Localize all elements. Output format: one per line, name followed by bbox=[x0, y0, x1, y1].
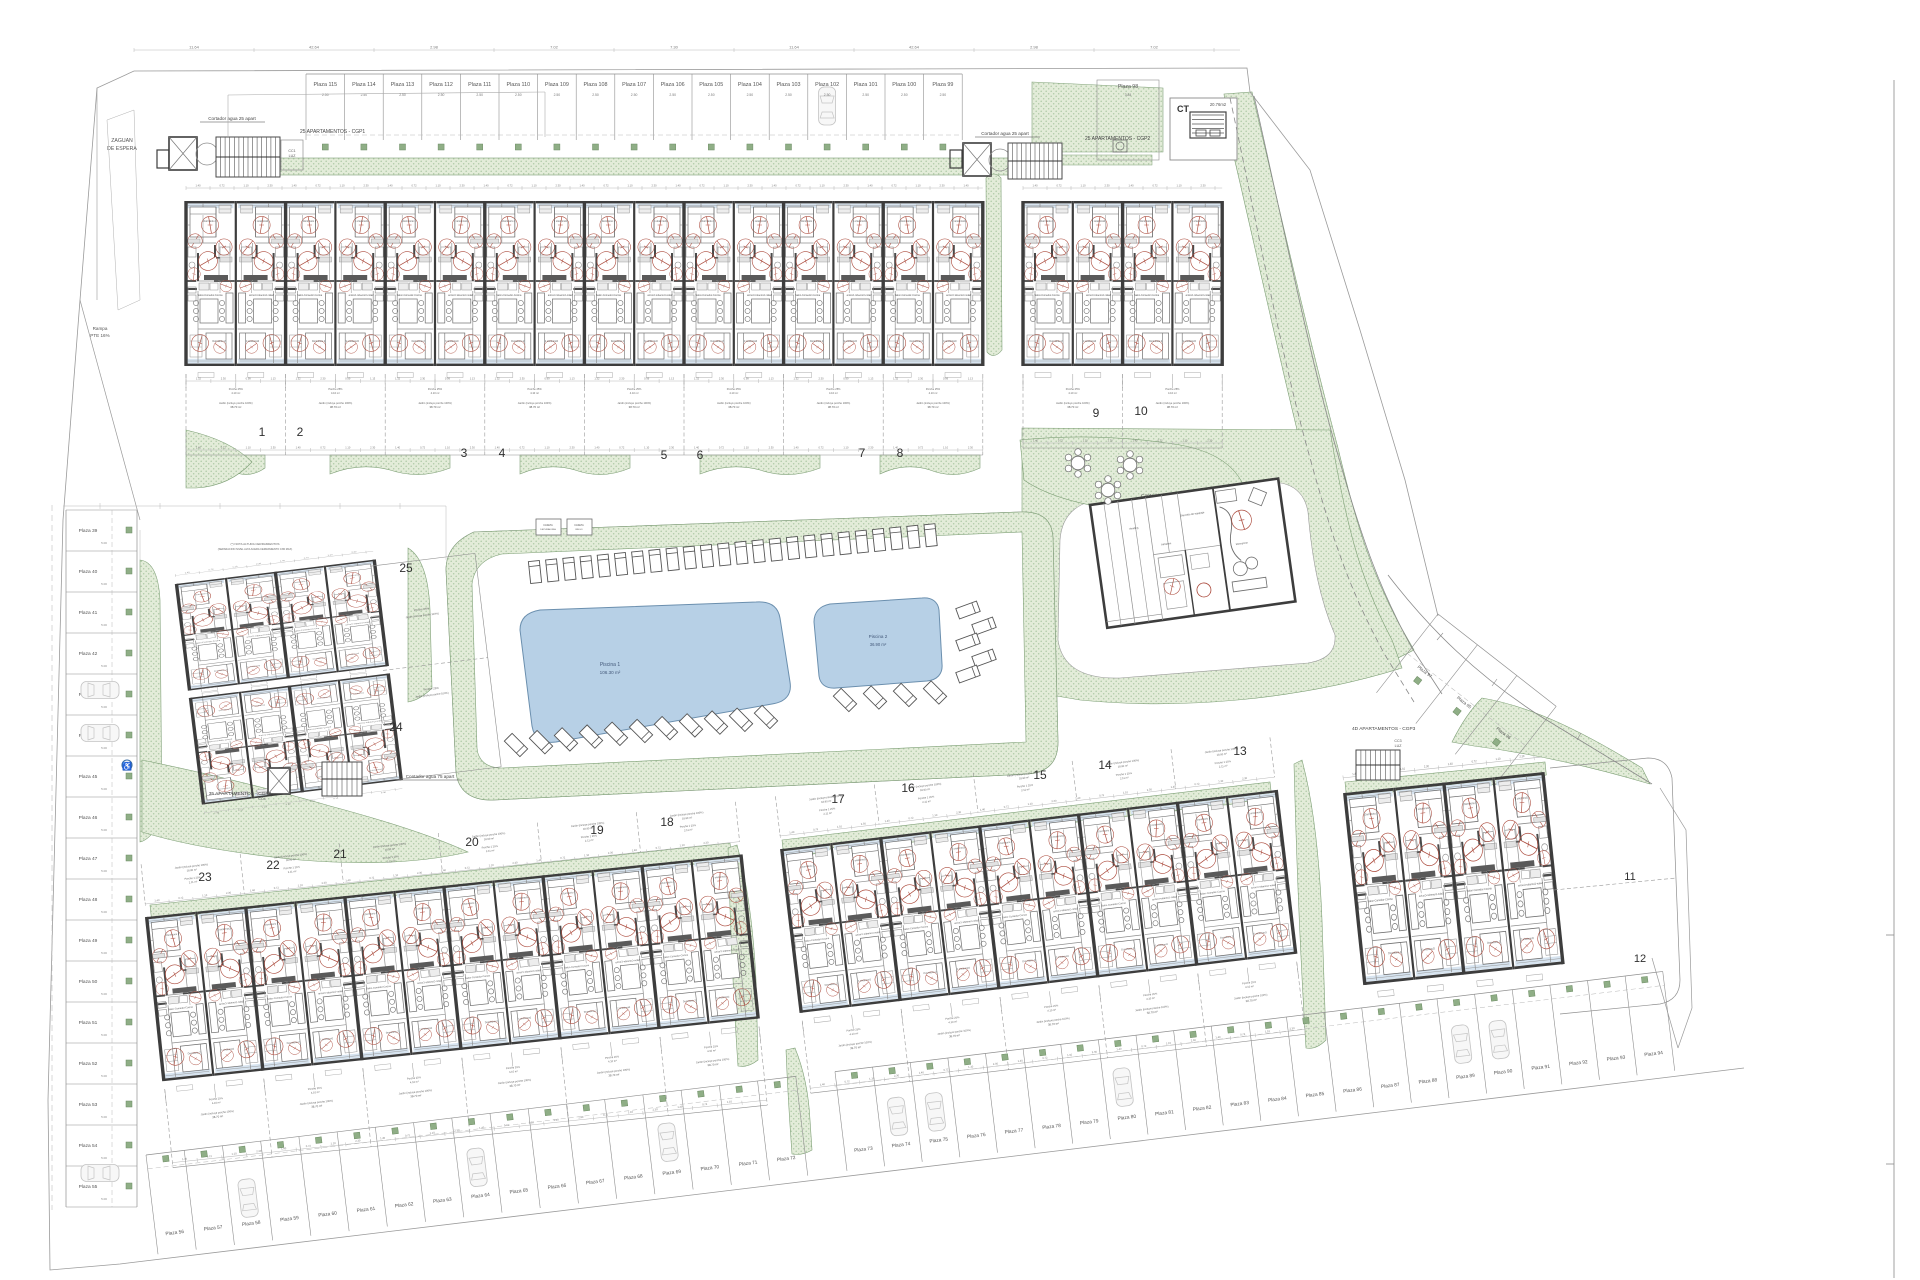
svg-text:1.40: 1.40 bbox=[1132, 439, 1138, 443]
svg-text:2.30: 2.30 bbox=[1207, 439, 1213, 443]
svg-text:0.72: 0.72 bbox=[274, 885, 280, 890]
svg-text:24: 24 bbox=[389, 720, 403, 734]
svg-text:1.40: 1.40 bbox=[387, 184, 393, 188]
svg-text:4.10 m²: 4.10 m² bbox=[231, 391, 240, 395]
svg-text:1.13: 1.13 bbox=[470, 377, 476, 381]
svg-text:2.50: 2.50 bbox=[669, 93, 676, 97]
svg-text:Porche 25%: Porche 25% bbox=[627, 387, 642, 391]
svg-text:1.40: 1.40 bbox=[867, 184, 873, 188]
svg-text:2.30: 2.30 bbox=[569, 446, 575, 450]
svg-text:Plaza 45: Plaza 45 bbox=[79, 774, 98, 780]
svg-text:Porche 25%: Porche 25% bbox=[229, 387, 244, 391]
svg-text:0.72: 0.72 bbox=[507, 184, 513, 188]
svg-text:0.72: 0.72 bbox=[306, 1144, 312, 1149]
svg-text:0.72: 0.72 bbox=[1152, 184, 1158, 188]
svg-text:1.40: 1.40 bbox=[578, 1115, 584, 1120]
svg-text:4.10 m²: 4.10 m² bbox=[1168, 391, 1177, 395]
svg-text:1.10: 1.10 bbox=[679, 843, 685, 848]
svg-text:1.32: 1.32 bbox=[594, 377, 600, 381]
svg-text:2.50: 2.50 bbox=[592, 93, 599, 97]
svg-text:Plaza 113: Plaza 113 bbox=[391, 82, 415, 88]
svg-text:2.30: 2.30 bbox=[1200, 184, 1206, 188]
svg-text:Plaza 41: Plaza 41 bbox=[79, 610, 98, 616]
svg-text:2.50: 2.50 bbox=[515, 93, 522, 97]
svg-text:1.10: 1.10 bbox=[544, 446, 550, 450]
svg-text:2.30: 2.30 bbox=[256, 1149, 262, 1154]
svg-text:1.13: 1.13 bbox=[968, 377, 974, 381]
svg-text:CC1: CC1 bbox=[288, 149, 295, 153]
svg-text:38.70 m²: 38.70 m² bbox=[429, 405, 440, 409]
svg-text:2.50: 2.50 bbox=[438, 93, 445, 97]
svg-text:1.40: 1.40 bbox=[483, 184, 489, 188]
svg-text:0.72: 0.72 bbox=[699, 184, 705, 188]
svg-text:Porche 25%: Porche 25% bbox=[926, 387, 941, 391]
svg-text:1.10: 1.10 bbox=[819, 184, 825, 188]
svg-text:42.64: 42.64 bbox=[909, 45, 920, 50]
svg-text:25: 25 bbox=[399, 561, 413, 575]
svg-text:1.10: 1.10 bbox=[943, 446, 949, 450]
svg-text:1.13: 1.13 bbox=[370, 377, 376, 381]
svg-text:2.30: 2.30 bbox=[520, 377, 526, 381]
svg-text:1.10: 1.10 bbox=[644, 446, 650, 450]
svg-text:0.72: 0.72 bbox=[1157, 439, 1163, 443]
svg-text:CASETA: CASETA bbox=[543, 524, 553, 527]
svg-text:1.40: 1.40 bbox=[1033, 439, 1039, 443]
svg-text:CASETA: CASETA bbox=[574, 524, 584, 527]
svg-text:3: 3 bbox=[461, 446, 468, 460]
svg-text:Plaza 53: Plaza 53 bbox=[79, 1102, 98, 1108]
svg-text:2.30: 2.30 bbox=[652, 1107, 658, 1112]
svg-text:DEPURADORA: DEPURADORA bbox=[540, 528, 556, 531]
svg-text:Plaza 110: Plaza 110 bbox=[507, 82, 531, 88]
svg-text:1.10: 1.10 bbox=[727, 1099, 733, 1104]
svg-text:38.70 m²: 38.70 m² bbox=[1167, 405, 1178, 409]
svg-text:4.10 m²: 4.10 m² bbox=[1068, 391, 1077, 395]
svg-text:0.72: 0.72 bbox=[411, 184, 417, 188]
svg-text:Porche 25%: Porche 25% bbox=[528, 387, 543, 391]
svg-text:7: 7 bbox=[859, 446, 866, 460]
svg-text:LUZ: LUZ bbox=[289, 154, 297, 158]
svg-text:Piscina 2: Piscina 2 bbox=[869, 634, 888, 639]
svg-text:1.40: 1.40 bbox=[1032, 184, 1038, 188]
svg-text:0.72: 0.72 bbox=[918, 446, 924, 450]
svg-text:10: 10 bbox=[1134, 404, 1148, 418]
svg-text:5.00: 5.00 bbox=[101, 623, 107, 627]
svg-text:7.30: 7.30 bbox=[670, 45, 679, 50]
svg-text:5.00: 5.00 bbox=[101, 1115, 107, 1119]
svg-text:2.30: 2.30 bbox=[868, 446, 874, 450]
svg-text:1.40: 1.40 bbox=[677, 1104, 683, 1109]
svg-text:CC4: CC4 bbox=[258, 797, 265, 801]
svg-text:Plaza 54: Plaza 54 bbox=[79, 1143, 98, 1149]
svg-text:1.10: 1.10 bbox=[297, 883, 303, 888]
svg-text:Plaza 50: Plaza 50 bbox=[79, 979, 98, 985]
svg-text:0.72: 0.72 bbox=[1058, 439, 1064, 443]
svg-text:2.30: 2.30 bbox=[843, 184, 849, 188]
svg-text:11: 11 bbox=[1624, 871, 1635, 883]
svg-text:4.10 m²: 4.10 m² bbox=[829, 391, 838, 395]
svg-text:2.30: 2.30 bbox=[608, 850, 614, 855]
svg-text:1.13: 1.13 bbox=[669, 377, 675, 381]
svg-text:1.10: 1.10 bbox=[330, 1141, 336, 1146]
svg-text:11.64: 11.64 bbox=[189, 45, 199, 50]
svg-text:♿: ♿ bbox=[122, 761, 132, 771]
svg-text:1.10: 1.10 bbox=[488, 863, 494, 868]
svg-text:2.50: 2.50 bbox=[901, 93, 908, 97]
svg-text:1.40: 1.40 bbox=[380, 1136, 386, 1141]
svg-text:1.32: 1.32 bbox=[793, 377, 799, 381]
svg-text:CC3: CC3 bbox=[1394, 739, 1401, 743]
svg-text:1.10: 1.10 bbox=[531, 184, 537, 188]
svg-text:Plaza 100: Plaza 100 bbox=[892, 82, 916, 88]
svg-text:Cortador agua 25 apart: Cortador agua 25 apart bbox=[208, 116, 256, 121]
svg-text:1.13: 1.13 bbox=[868, 377, 874, 381]
svg-text:1.10: 1.10 bbox=[627, 184, 633, 188]
svg-text:Plaza 105: Plaza 105 bbox=[699, 82, 723, 88]
svg-text:Plaza 42: Plaza 42 bbox=[79, 651, 98, 657]
svg-text:1.10: 1.10 bbox=[345, 446, 351, 450]
svg-text:5.00: 5.00 bbox=[101, 1074, 107, 1078]
svg-text:Plaza 49: Plaza 49 bbox=[79, 938, 98, 944]
svg-text:Plaza 52: Plaza 52 bbox=[79, 1061, 98, 1067]
svg-text:1.10: 1.10 bbox=[723, 184, 729, 188]
svg-text:20.76m2: 20.76m2 bbox=[1210, 102, 1227, 107]
svg-text:0.72: 0.72 bbox=[178, 895, 184, 900]
svg-text:2.50: 2.50 bbox=[322, 93, 329, 97]
svg-text:4.10 m²: 4.10 m² bbox=[331, 391, 340, 395]
svg-text:1.10: 1.10 bbox=[744, 446, 750, 450]
svg-text:0.72: 0.72 bbox=[315, 184, 321, 188]
svg-text:38.70 m²: 38.70 m² bbox=[330, 405, 341, 409]
svg-text:7.02: 7.02 bbox=[550, 45, 559, 50]
svg-text:Rampa: Rampa bbox=[93, 326, 108, 331]
svg-text:2.50: 2.50 bbox=[631, 93, 638, 97]
svg-text:Plaza 114: Plaza 114 bbox=[352, 82, 376, 88]
svg-text:2.50: 2.50 bbox=[940, 93, 947, 97]
svg-text:1.40: 1.40 bbox=[291, 184, 297, 188]
svg-text:RIEGO: RIEGO bbox=[575, 529, 582, 531]
svg-text:5.00: 5.00 bbox=[101, 664, 107, 668]
svg-text:1.40: 1.40 bbox=[632, 848, 638, 853]
svg-text:0.99: 0.99 bbox=[943, 377, 949, 381]
svg-text:Plaza 55: Plaza 55 bbox=[79, 1184, 98, 1190]
svg-text:1.40: 1.40 bbox=[441, 868, 447, 873]
svg-text:1.10: 1.10 bbox=[1495, 756, 1501, 761]
svg-text:0.72: 0.72 bbox=[221, 446, 227, 450]
svg-text:2.50: 2.50 bbox=[862, 93, 869, 97]
svg-text:38.70 m²: 38.70 m² bbox=[927, 405, 938, 409]
svg-text:Porche 25%: Porche 25% bbox=[428, 387, 443, 391]
svg-text:0.72: 0.72 bbox=[369, 875, 375, 880]
svg-text:2: 2 bbox=[297, 425, 304, 439]
svg-text:Plaza 103: Plaza 103 bbox=[777, 82, 801, 88]
svg-text:2.30: 2.30 bbox=[651, 184, 657, 188]
svg-text:1.10: 1.10 bbox=[393, 873, 399, 878]
svg-text:2.30: 2.30 bbox=[669, 446, 675, 450]
svg-text:0.72: 0.72 bbox=[603, 184, 609, 188]
svg-text:21: 21 bbox=[333, 847, 347, 861]
svg-text:1.40: 1.40 bbox=[1128, 184, 1134, 188]
svg-text:0.99: 0.99 bbox=[744, 377, 750, 381]
svg-text:2.30: 2.30 bbox=[619, 377, 625, 381]
svg-text:4D APARTAMENTOS - CGP3: 4D APARTAMENTOS - CGP3 bbox=[1352, 726, 1416, 732]
svg-text:1.13: 1.13 bbox=[569, 377, 575, 381]
svg-text:16: 16 bbox=[901, 781, 915, 795]
svg-text:0.99: 0.99 bbox=[843, 377, 849, 381]
svg-text:2.30: 2.30 bbox=[420, 377, 426, 381]
svg-text:1.40: 1.40 bbox=[594, 446, 600, 450]
svg-text:(*) NOTA ALTURA CERRAMIENTOS: (*) NOTA ALTURA CERRAMIENTOS bbox=[230, 542, 279, 546]
svg-text:2.30: 2.30 bbox=[221, 377, 227, 381]
svg-text:20: 20 bbox=[465, 835, 479, 849]
svg-text:2.30: 2.30 bbox=[355, 1138, 361, 1143]
svg-text:38.70 m²: 38.70 m² bbox=[828, 405, 839, 409]
svg-text:0.72: 0.72 bbox=[420, 446, 426, 450]
svg-text:2.30: 2.30 bbox=[1108, 439, 1114, 443]
svg-text:Plaza 99: Plaza 99 bbox=[932, 82, 953, 88]
svg-text:5.00: 5.00 bbox=[101, 828, 107, 832]
svg-text:1.40: 1.40 bbox=[579, 184, 585, 188]
svg-text:2.50: 2.50 bbox=[476, 93, 483, 97]
svg-text:4.10 m²: 4.10 m² bbox=[630, 391, 639, 395]
svg-text:(SEPARACION NIVEL ALTA ACERA C: (SEPARACION NIVEL ALTA ACERA CERRAMIENTO… bbox=[218, 547, 293, 551]
svg-text:2.30: 2.30 bbox=[320, 377, 326, 381]
svg-text:6: 6 bbox=[697, 448, 704, 462]
svg-text:2.30: 2.30 bbox=[818, 377, 824, 381]
svg-text:1.40: 1.40 bbox=[250, 888, 256, 893]
svg-text:Piscina 1: Piscina 1 bbox=[600, 662, 621, 668]
svg-text:1.10: 1.10 bbox=[339, 184, 345, 188]
svg-text:5.00: 5.00 bbox=[101, 992, 107, 996]
svg-text:0.72: 0.72 bbox=[219, 184, 225, 188]
svg-text:0.72: 0.72 bbox=[603, 1112, 609, 1117]
svg-text:1: 1 bbox=[259, 425, 266, 439]
svg-text:Plaza 47: Plaza 47 bbox=[79, 856, 98, 862]
svg-text:1.10: 1.10 bbox=[1083, 439, 1089, 443]
svg-text:25 APARTAMENTOS - CGP1: 25 APARTAMENTOS - CGP1 bbox=[300, 129, 365, 135]
svg-text:5.00: 5.00 bbox=[101, 910, 107, 914]
svg-text:Plaza 112: Plaza 112 bbox=[429, 82, 453, 88]
svg-text:2.30: 2.30 bbox=[417, 870, 423, 875]
svg-text:0.99: 0.99 bbox=[544, 377, 550, 381]
svg-text:2.30: 2.30 bbox=[769, 446, 775, 450]
svg-text:14: 14 bbox=[1098, 758, 1112, 772]
svg-text:3.84: 3.84 bbox=[1125, 93, 1132, 97]
svg-text:0.99: 0.99 bbox=[345, 377, 351, 381]
svg-text:4: 4 bbox=[499, 446, 506, 460]
svg-text:Porche 25%: Porche 25% bbox=[328, 387, 343, 391]
svg-text:1.40: 1.40 bbox=[479, 1125, 485, 1130]
svg-text:1.10: 1.10 bbox=[843, 446, 849, 450]
svg-text:38.70 m²: 38.70 m² bbox=[230, 405, 241, 409]
svg-text:1.40: 1.40 bbox=[395, 446, 401, 450]
svg-text:Plaza 109: Plaza 109 bbox=[545, 82, 569, 88]
svg-text:2.30: 2.30 bbox=[1519, 754, 1525, 759]
svg-text:Plaza 40: Plaza 40 bbox=[79, 569, 98, 575]
svg-text:4.10 m²: 4.10 m² bbox=[530, 391, 539, 395]
svg-text:Plaza 104: Plaza 104 bbox=[738, 82, 762, 88]
svg-text:0.72: 0.72 bbox=[320, 446, 326, 450]
svg-text:1.10: 1.10 bbox=[231, 1151, 237, 1156]
svg-text:1.40: 1.40 bbox=[963, 184, 969, 188]
svg-text:1.10: 1.10 bbox=[246, 446, 252, 450]
svg-text:2.98: 2.98 bbox=[430, 45, 439, 50]
svg-text:0.72: 0.72 bbox=[1056, 184, 1062, 188]
svg-text:2.30: 2.30 bbox=[370, 446, 376, 450]
svg-text:36.90 m²: 36.90 m² bbox=[870, 642, 887, 647]
svg-text:Plaza 39: Plaza 39 bbox=[79, 528, 98, 534]
svg-text:1.10: 1.10 bbox=[202, 893, 208, 898]
svg-text:2.50: 2.50 bbox=[824, 93, 831, 97]
svg-text:38.70 m²: 38.70 m² bbox=[629, 405, 640, 409]
svg-text:1.32: 1.32 bbox=[296, 377, 302, 381]
svg-text:0.72: 0.72 bbox=[719, 446, 725, 450]
svg-text:2.98: 2.98 bbox=[1030, 45, 1039, 50]
svg-text:22: 22 bbox=[266, 858, 280, 872]
svg-text:2.30: 2.30 bbox=[747, 184, 753, 188]
svg-text:5.00: 5.00 bbox=[101, 1156, 107, 1160]
svg-text:1.32: 1.32 bbox=[694, 377, 700, 381]
svg-text:0.72: 0.72 bbox=[702, 1102, 708, 1107]
svg-text:2.30: 2.30 bbox=[555, 184, 561, 188]
svg-text:25 APARTAMENTOS - CGP2: 25 APARTAMENTOS - CGP2 bbox=[1085, 136, 1150, 142]
svg-text:1.13: 1.13 bbox=[769, 377, 775, 381]
svg-text:42.64: 42.64 bbox=[309, 45, 320, 50]
svg-text:1.40: 1.40 bbox=[675, 184, 681, 188]
svg-text:0.72: 0.72 bbox=[655, 845, 661, 850]
svg-text:2.30: 2.30 bbox=[939, 184, 945, 188]
svg-text:15: 15 bbox=[1033, 768, 1047, 782]
svg-text:12: 12 bbox=[1634, 953, 1646, 965]
svg-text:2.50: 2.50 bbox=[708, 93, 715, 97]
svg-text:1.13: 1.13 bbox=[271, 377, 277, 381]
svg-text:LUZ: LUZ bbox=[1395, 744, 1403, 748]
svg-text:35 APARTAMENTOS - CGP4: 35 APARTAMENTOS - CGP4 bbox=[209, 791, 272, 797]
svg-text:2.30: 2.30 bbox=[459, 184, 465, 188]
svg-text:38.70 m²: 38.70 m² bbox=[1067, 405, 1078, 409]
svg-text:9: 9 bbox=[1093, 406, 1100, 420]
svg-text:Plaza 107: Plaza 107 bbox=[622, 82, 646, 88]
svg-text:2.30: 2.30 bbox=[363, 184, 369, 188]
svg-text:17: 17 bbox=[831, 792, 845, 806]
svg-text:0.99: 0.99 bbox=[246, 377, 252, 381]
svg-text:DE ESPERA: DE ESPERA bbox=[107, 146, 137, 152]
svg-text:5.00: 5.00 bbox=[101, 951, 107, 955]
svg-text:0.72: 0.72 bbox=[619, 446, 625, 450]
svg-text:Plaza 51: Plaza 51 bbox=[79, 1020, 98, 1026]
svg-text:2.30: 2.30 bbox=[1424, 764, 1430, 769]
svg-text:38.70 m²: 38.70 m² bbox=[728, 405, 739, 409]
svg-text:5.00: 5.00 bbox=[101, 705, 107, 709]
svg-text:2.30: 2.30 bbox=[719, 377, 725, 381]
svg-text:0.72: 0.72 bbox=[818, 446, 824, 450]
svg-text:5.00: 5.00 bbox=[101, 1033, 107, 1037]
svg-text:Plaza 115: Plaza 115 bbox=[314, 82, 338, 88]
svg-text:0.72: 0.72 bbox=[520, 446, 526, 450]
svg-text:2.30: 2.30 bbox=[267, 184, 273, 188]
svg-text:0.72: 0.72 bbox=[795, 184, 801, 188]
svg-text:2.30: 2.30 bbox=[226, 890, 232, 895]
svg-text:8: 8 bbox=[897, 446, 904, 460]
svg-text:1.40: 1.40 bbox=[154, 898, 160, 903]
svg-text:Plaza 106: Plaza 106 bbox=[661, 82, 685, 88]
svg-text:1.10: 1.10 bbox=[1400, 766, 1406, 771]
svg-text:1.10: 1.10 bbox=[243, 184, 249, 188]
svg-text:Plaza 101: Plaza 101 bbox=[854, 82, 878, 88]
svg-text:4.10 m²: 4.10 m² bbox=[431, 391, 440, 395]
svg-text:2.50: 2.50 bbox=[747, 93, 754, 97]
svg-text:5.00: 5.00 bbox=[101, 541, 107, 545]
svg-text:1.40: 1.40 bbox=[196, 446, 202, 450]
svg-text:1.40: 1.40 bbox=[1448, 761, 1454, 766]
svg-text:7.02: 7.02 bbox=[1150, 45, 1159, 50]
svg-text:2.30: 2.30 bbox=[512, 860, 518, 865]
svg-text:1.32: 1.32 bbox=[495, 377, 501, 381]
svg-text:0.72: 0.72 bbox=[891, 184, 897, 188]
svg-text:5.00: 5.00 bbox=[101, 787, 107, 791]
svg-text:1.10: 1.10 bbox=[1176, 184, 1182, 188]
svg-text:0.99: 0.99 bbox=[445, 377, 451, 381]
svg-text:1.10: 1.10 bbox=[435, 184, 441, 188]
svg-text:CT: CT bbox=[1177, 104, 1189, 114]
svg-text:2.50: 2.50 bbox=[554, 93, 561, 97]
svg-text:0.72: 0.72 bbox=[1471, 759, 1477, 764]
svg-text:2.30: 2.30 bbox=[1104, 184, 1110, 188]
svg-text:1.40: 1.40 bbox=[296, 446, 302, 450]
svg-text:2.30: 2.30 bbox=[271, 446, 277, 450]
svg-text:Plaza 111: Plaza 111 bbox=[468, 82, 491, 88]
svg-text:Porche 25%: Porche 25% bbox=[1165, 387, 1180, 391]
svg-text:5.00: 5.00 bbox=[101, 1197, 107, 1201]
svg-text:11.64: 11.64 bbox=[789, 45, 799, 50]
svg-text:Contador agua 75 apart: Contador agua 75 apart bbox=[406, 774, 455, 779]
svg-text:1.10: 1.10 bbox=[445, 446, 451, 450]
svg-text:Cortador agua 25 apart: Cortador agua 25 apart bbox=[981, 131, 1029, 136]
svg-text:2.50: 2.50 bbox=[785, 93, 792, 97]
svg-text:1.32: 1.32 bbox=[196, 377, 202, 381]
svg-text:1.32: 1.32 bbox=[893, 377, 899, 381]
svg-text:1.10: 1.10 bbox=[1080, 184, 1086, 188]
svg-text:1.40: 1.40 bbox=[345, 878, 351, 883]
svg-text:5.00: 5.00 bbox=[101, 582, 107, 586]
svg-text:Plaza 46: Plaza 46 bbox=[79, 815, 98, 821]
svg-text:2.30: 2.30 bbox=[918, 377, 924, 381]
svg-text:PTE 16%: PTE 16% bbox=[90, 333, 109, 338]
svg-text:2.30: 2.30 bbox=[470, 446, 476, 450]
svg-text:1.10: 1.10 bbox=[584, 853, 590, 858]
svg-text:Plaza 98: Plaza 98 bbox=[1118, 84, 1138, 90]
svg-text:ZAGUAN: ZAGUAN bbox=[111, 138, 133, 144]
svg-text:18: 18 bbox=[660, 815, 674, 829]
svg-text:Porche 25%: Porche 25% bbox=[727, 387, 742, 391]
svg-text:1.40: 1.40 bbox=[793, 446, 799, 450]
svg-text:4.10 m²: 4.10 m² bbox=[929, 391, 938, 395]
svg-text:1.40: 1.40 bbox=[771, 184, 777, 188]
svg-text:2.30: 2.30 bbox=[454, 1128, 460, 1133]
svg-text:0.72: 0.72 bbox=[465, 865, 471, 870]
svg-text:5.00: 5.00 bbox=[101, 869, 107, 873]
svg-text:5.00: 5.00 bbox=[101, 746, 107, 750]
svg-text:5: 5 bbox=[661, 448, 668, 462]
svg-text:2.30: 2.30 bbox=[968, 446, 974, 450]
svg-text:1.10: 1.10 bbox=[915, 184, 921, 188]
svg-text:4.10 m²: 4.10 m² bbox=[729, 391, 738, 395]
svg-text:23: 23 bbox=[198, 870, 212, 884]
svg-text:1.40: 1.40 bbox=[195, 184, 201, 188]
svg-text:106.30 m²: 106.30 m² bbox=[600, 670, 621, 675]
svg-text:38.70 m²: 38.70 m² bbox=[529, 405, 540, 409]
svg-text:1.32: 1.32 bbox=[395, 377, 401, 381]
